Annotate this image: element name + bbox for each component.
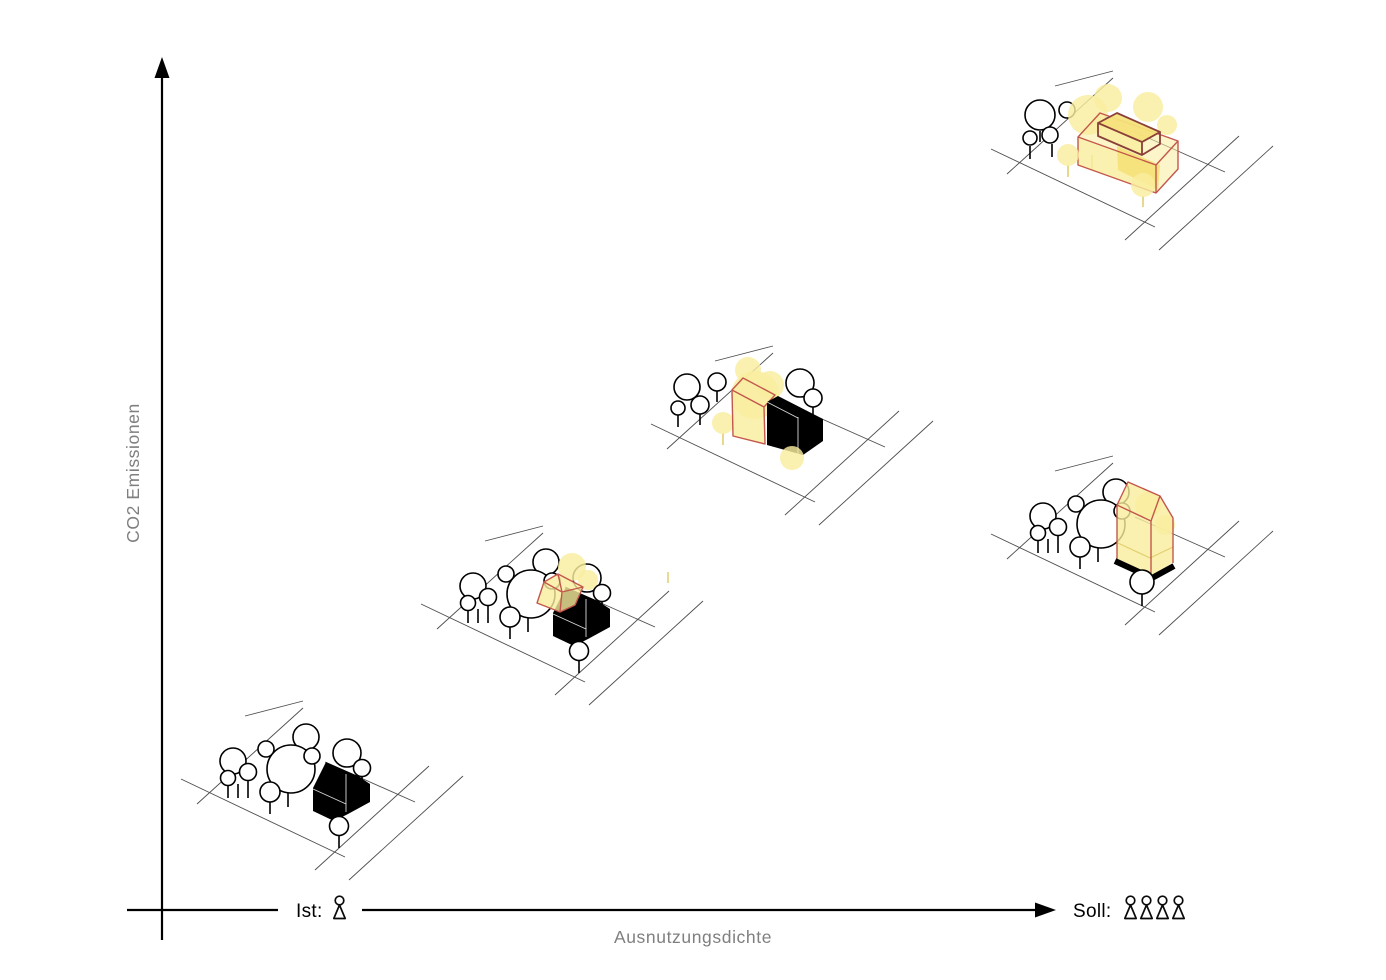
co2-density-diagram: CO2 Emissionen Ist: Soll: Ausnutzungsdic… <box>0 0 1386 980</box>
ist-person-icons <box>334 896 345 918</box>
new-tree <box>712 412 734 434</box>
tree <box>1023 131 1037 145</box>
tree <box>1025 100 1055 130</box>
new-tree-front <box>780 446 804 470</box>
front-tree <box>330 817 349 849</box>
diagram-canvas: CO2 Emissionen Ist: Soll: Ausnutzungsdic… <box>0 0 1386 980</box>
front-tree <box>570 642 589 674</box>
soll-label: Soll: <box>1073 901 1111 922</box>
tree <box>1042 127 1058 143</box>
tower-volume <box>1115 482 1174 578</box>
arrow-right-icon <box>1035 903 1056 918</box>
new-tree <box>1131 173 1155 197</box>
scenario-existing-black-house <box>181 701 463 880</box>
y-axis-label: CO2 Emissionen <box>123 403 143 543</box>
y-axis: CO2 Emissionen <box>123 57 170 940</box>
front-tree <box>1130 570 1154 606</box>
x-axis-label: Ausnutzungsdichte <box>614 927 772 947</box>
ist-label: Ist: <box>296 901 323 922</box>
tree <box>708 373 726 391</box>
x-axis: Ist: Soll: Ausnutzungsdichte <box>127 896 1184 947</box>
tree <box>671 401 685 415</box>
tree <box>1130 570 1154 594</box>
tree <box>691 396 709 414</box>
person-icon <box>1125 896 1136 918</box>
new-tree <box>780 446 804 470</box>
person-icon <box>334 896 345 918</box>
person-icon <box>1141 896 1152 918</box>
soll-person-icons <box>1125 896 1184 918</box>
person-icon <box>1173 896 1184 918</box>
scenario-new-tower-volume <box>991 456 1273 635</box>
scenario-new-slab-volume <box>991 71 1273 250</box>
scenario-house-side-addition <box>651 346 933 525</box>
new-tree <box>1133 92 1163 122</box>
person-icon <box>1157 896 1168 918</box>
new-tree <box>1057 144 1079 166</box>
arrow-up-icon <box>155 57 170 78</box>
tree <box>804 389 822 407</box>
scenario-house-roof-addition <box>421 526 703 705</box>
